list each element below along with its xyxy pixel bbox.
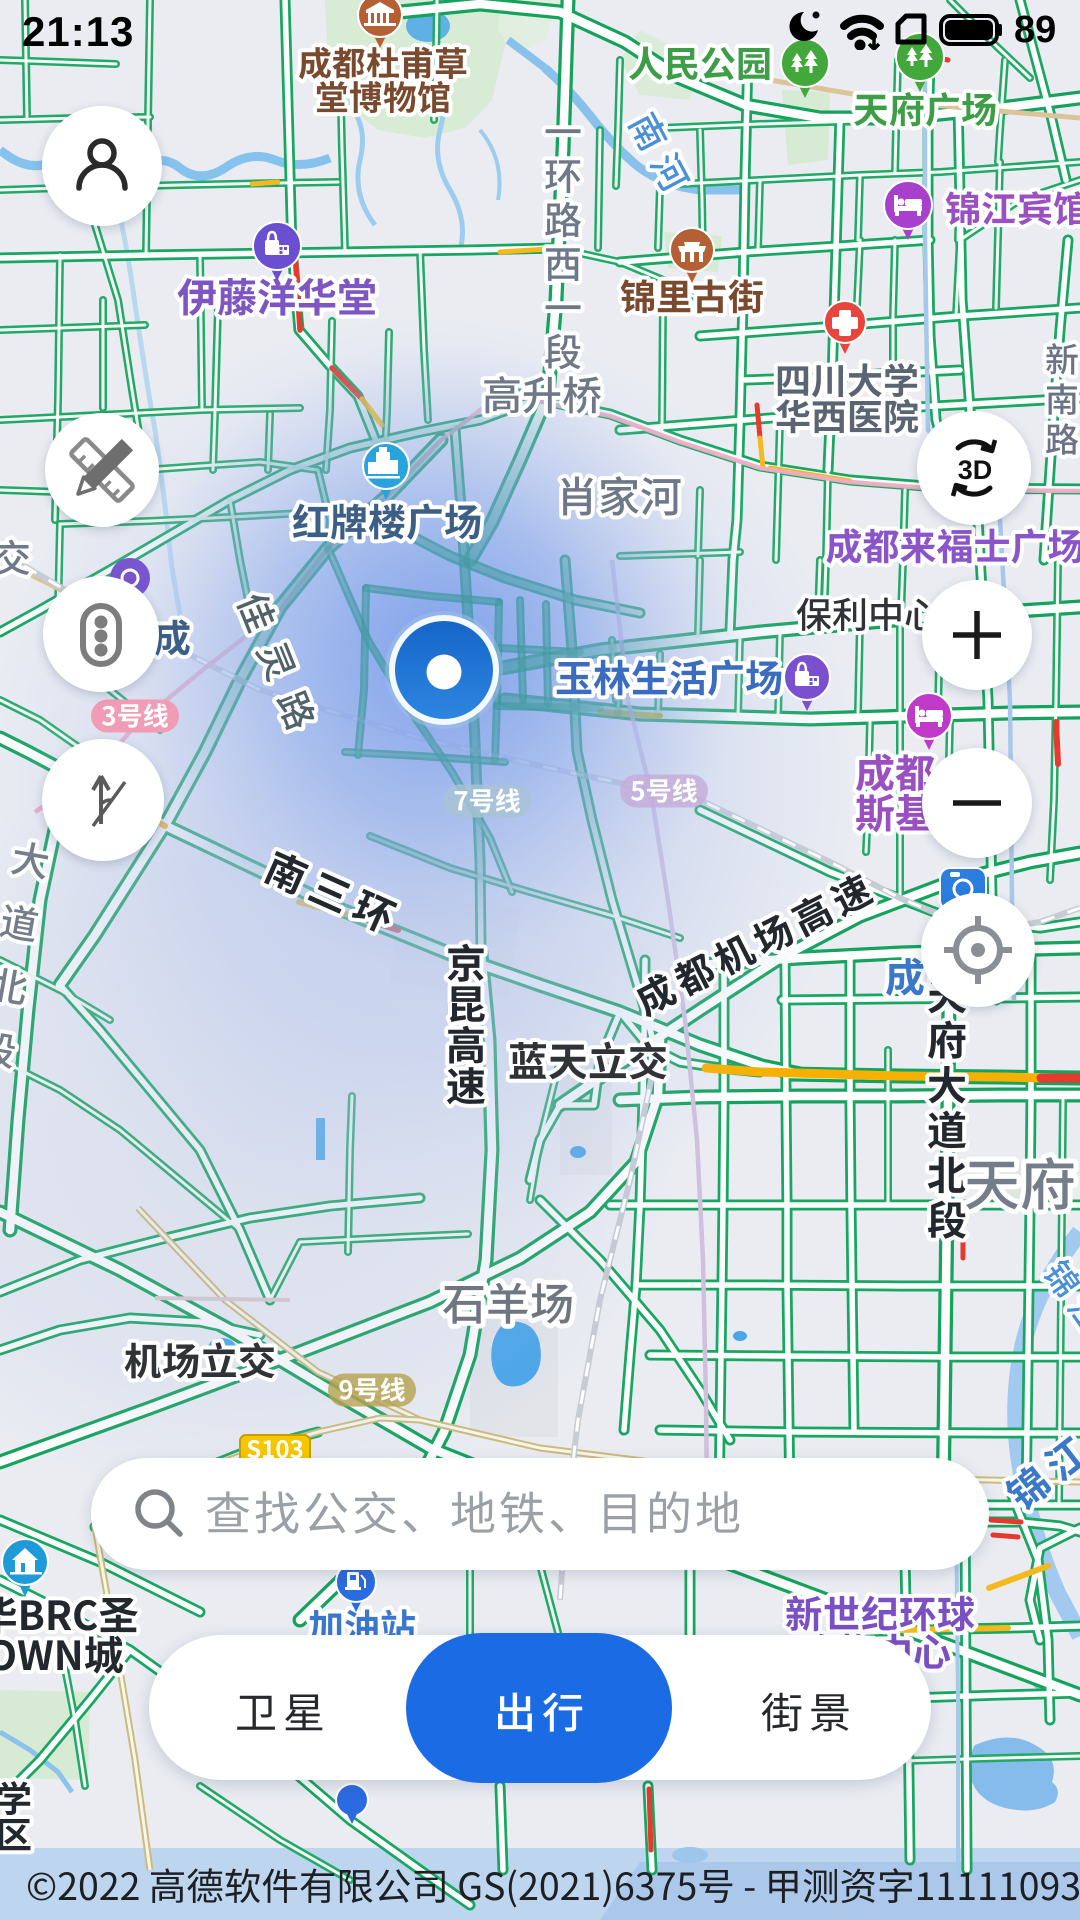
- svg-text:3D: 3D: [958, 455, 993, 485]
- svg-text:89: 89: [1014, 9, 1056, 50]
